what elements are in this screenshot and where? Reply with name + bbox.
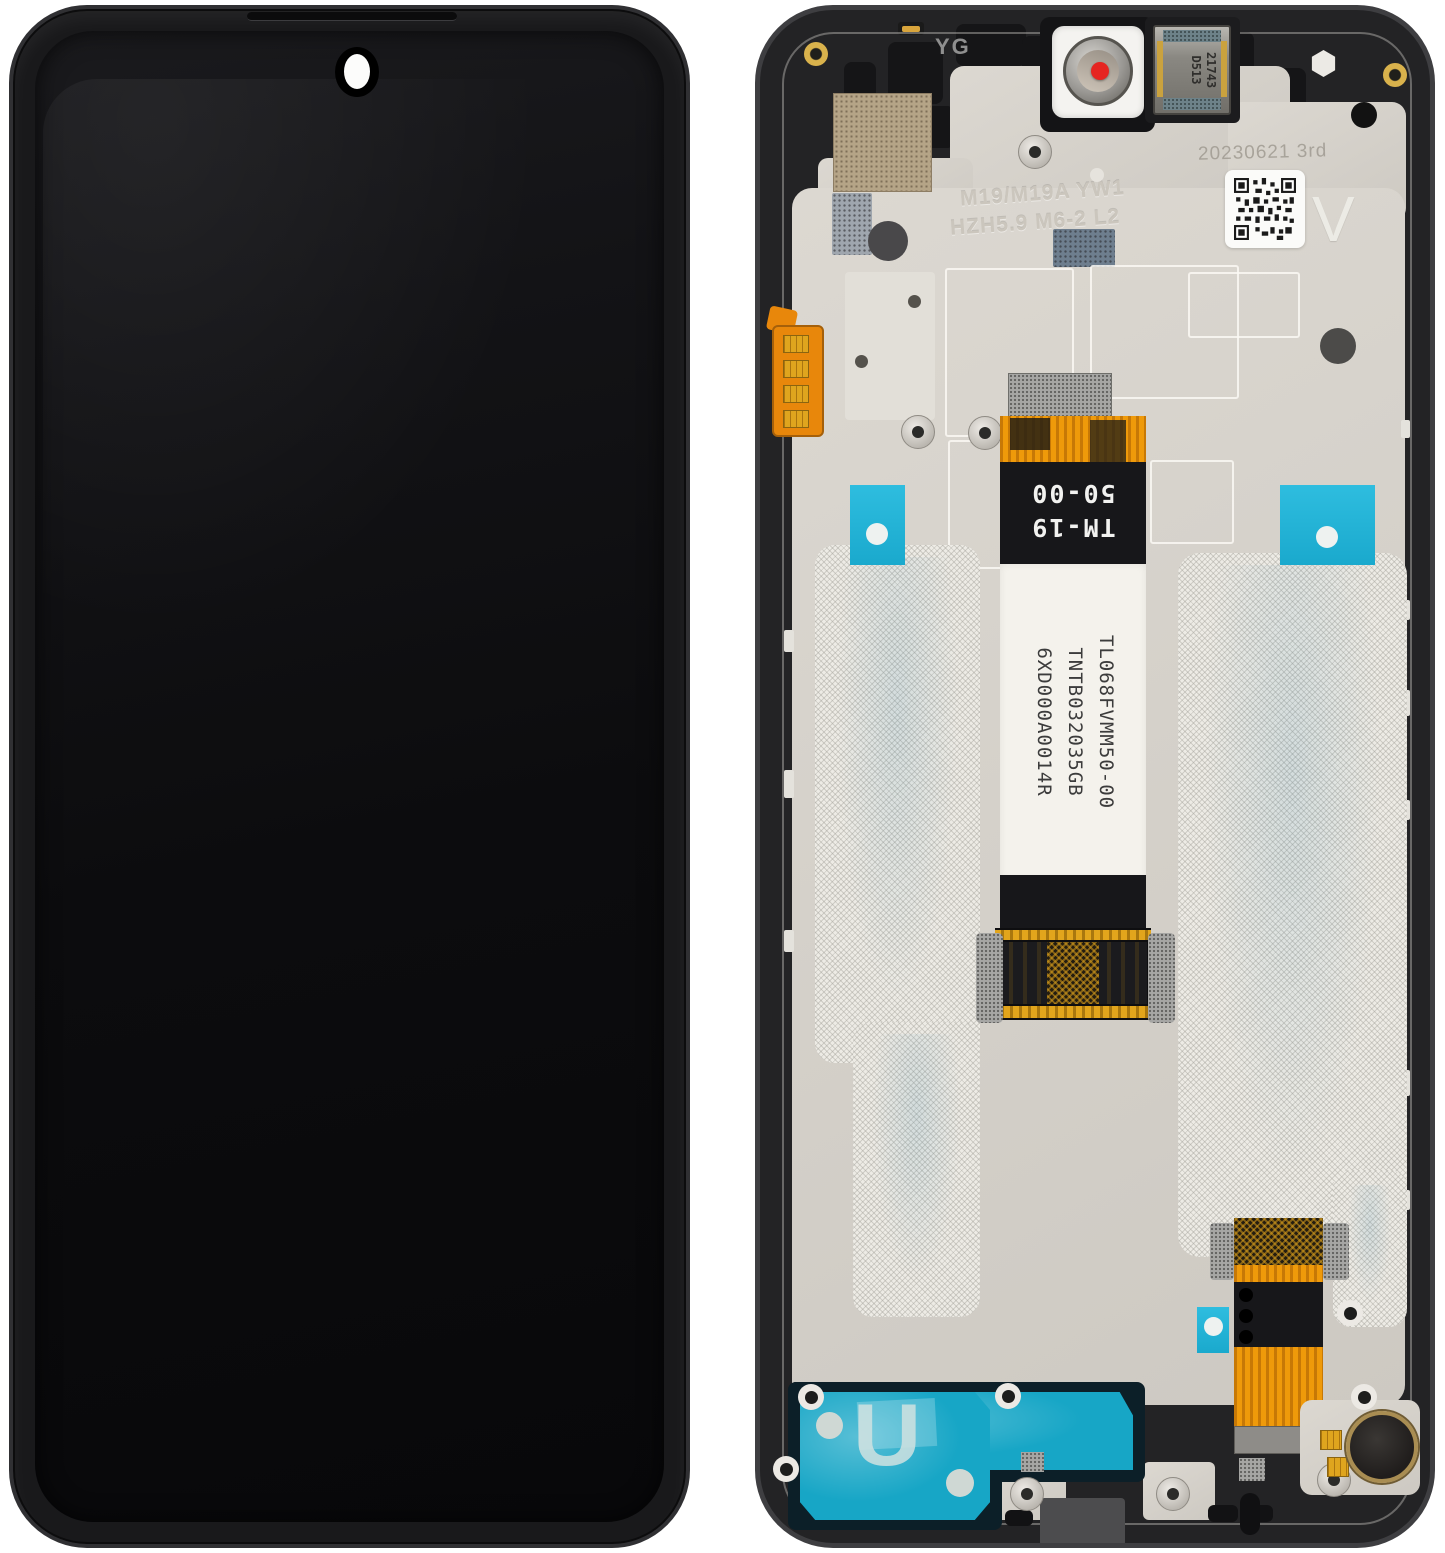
gold-contact bbox=[783, 410, 809, 428]
phone-front-view bbox=[9, 5, 690, 1548]
flex-component bbox=[1090, 420, 1126, 464]
flex-dot bbox=[1239, 1309, 1253, 1323]
antenna-mesh-pad bbox=[833, 93, 932, 192]
bond-side-pad bbox=[1148, 933, 1175, 1023]
camera-red-dot-sticker bbox=[1091, 62, 1109, 80]
flex-label: TL068FVMM50-00 TNTB032035GB 6XD000A0014R bbox=[1000, 564, 1146, 879]
gold-contact bbox=[783, 335, 809, 353]
frame-hole bbox=[1351, 102, 1377, 128]
earpiece-slot bbox=[247, 12, 457, 21]
screen-reflection bbox=[43, 79, 653, 779]
flex-dot bbox=[1239, 1330, 1253, 1344]
screw-boss bbox=[968, 416, 1002, 450]
flex-bond-connector bbox=[995, 928, 1151, 1020]
flex-label-code1: TL068FVMM50-00 bbox=[1090, 572, 1121, 872]
foam-pad bbox=[832, 193, 872, 255]
gold-contact bbox=[783, 360, 809, 378]
side-flex-connector bbox=[772, 325, 824, 437]
gold-screw-hole bbox=[804, 42, 828, 66]
pull-tab-hole bbox=[866, 523, 888, 545]
gold-screw-hole bbox=[1383, 63, 1407, 87]
rail-notch bbox=[784, 630, 794, 652]
bond-side-pad bbox=[976, 933, 1003, 1023]
flex-side-pad bbox=[1210, 1223, 1234, 1280]
screw-boss bbox=[901, 415, 935, 449]
screw-hole bbox=[995, 1383, 1021, 1409]
main-flex-black: TM-19 50-00 bbox=[1000, 462, 1146, 568]
plate-hole bbox=[855, 355, 868, 368]
etched-outline bbox=[1188, 272, 1300, 338]
gold-bond-row bbox=[995, 1006, 1151, 1018]
date-stamp: 20230621 3rd bbox=[1198, 140, 1328, 165]
earpiece-speaker: 21743 D513 bbox=[1153, 25, 1231, 115]
pull-tab-right bbox=[1280, 485, 1375, 565]
screw-hole bbox=[1337, 1300, 1363, 1326]
adhesive-dot bbox=[868, 221, 908, 261]
flex-side-pad bbox=[1323, 1223, 1349, 1280]
flex-label-codes: TL068FVMM50-00 TNTB032035GB 6XD000A0014R bbox=[1025, 572, 1121, 872]
adhesive-dot bbox=[1320, 328, 1356, 364]
bond-mesh bbox=[1047, 942, 1099, 1004]
graphite-pad-right bbox=[1190, 565, 1395, 1245]
phone-back-view: YG 21743 D513 20230621 3rd bbox=[755, 5, 1435, 1548]
graphite-pad-left-lower bbox=[865, 1034, 968, 1305]
flex-label-code3: 6XD000A0014R bbox=[1028, 572, 1059, 872]
adhesive-hole bbox=[946, 1469, 974, 1497]
screw-hole bbox=[798, 1384, 824, 1410]
speaker-marking-line: 21743 bbox=[1203, 40, 1218, 100]
screw-hole bbox=[1351, 1384, 1377, 1410]
gold-contact bbox=[783, 385, 809, 403]
flex-code-line2: 50-00 bbox=[1000, 476, 1146, 510]
speaker-contact bbox=[1221, 41, 1227, 97]
screw-boss bbox=[1018, 135, 1052, 169]
speaker-marking-line: D513 bbox=[1188, 40, 1203, 100]
mic-port bbox=[1240, 1493, 1260, 1535]
flex-dot bbox=[1239, 1288, 1253, 1302]
flex-code-line1: TM-19 bbox=[1000, 510, 1146, 544]
foam-pad bbox=[1053, 229, 1115, 267]
adhesive-hole bbox=[816, 1412, 843, 1439]
flex-stiffener bbox=[1008, 373, 1112, 419]
motor-contact bbox=[1320, 1430, 1342, 1450]
adhesive-letter: U bbox=[853, 1384, 939, 1474]
screw-boss bbox=[1156, 1477, 1190, 1511]
flex-code: TM-19 50-00 bbox=[1000, 476, 1146, 544]
screw-hole bbox=[773, 1456, 799, 1482]
frame-code-label: YG bbox=[935, 34, 971, 60]
graphite-pad-left bbox=[827, 557, 968, 1051]
pull-tab-hole bbox=[1204, 1317, 1223, 1336]
plate-dimple bbox=[1090, 168, 1104, 182]
sub-flex-black bbox=[1234, 1282, 1323, 1350]
rail-notch bbox=[784, 770, 794, 798]
screw-boss bbox=[1010, 1477, 1044, 1511]
pull-tab-hole bbox=[1316, 526, 1338, 548]
gold-bond-row bbox=[995, 930, 1151, 940]
main-flex-black-lower bbox=[1000, 875, 1146, 933]
frame-recess bbox=[1040, 1498, 1125, 1546]
graphite-pad-right-lower bbox=[1345, 1185, 1395, 1315]
vibration-motor bbox=[1346, 1411, 1418, 1483]
speaker-contact bbox=[1157, 41, 1163, 97]
motor-contact bbox=[1327, 1457, 1349, 1477]
flex-component bbox=[1010, 418, 1050, 450]
qr-code bbox=[1234, 178, 1296, 240]
plate-hole bbox=[908, 295, 921, 308]
sub-flex-mesh bbox=[1234, 1218, 1323, 1268]
flex-label-code2: TNTB032035GB bbox=[1059, 572, 1090, 872]
etched-outline bbox=[1150, 460, 1234, 544]
plate-raised-square bbox=[845, 272, 935, 420]
punch-hole-camera bbox=[344, 54, 370, 89]
rail-notch bbox=[1401, 420, 1410, 438]
version-letter: V bbox=[1312, 182, 1355, 256]
product-photo-lcd-assembly: YG 21743 D513 20230621 3rd bbox=[0, 0, 1445, 1553]
qr-sticker bbox=[1225, 170, 1305, 248]
speaker-marking: 21743 D513 bbox=[1166, 40, 1218, 100]
ground-pad bbox=[1239, 1458, 1265, 1481]
frame-slot bbox=[1005, 1510, 1033, 1526]
frame-slot bbox=[1208, 1505, 1238, 1522]
rail-notch bbox=[784, 930, 794, 952]
ground-pad bbox=[1021, 1452, 1044, 1472]
